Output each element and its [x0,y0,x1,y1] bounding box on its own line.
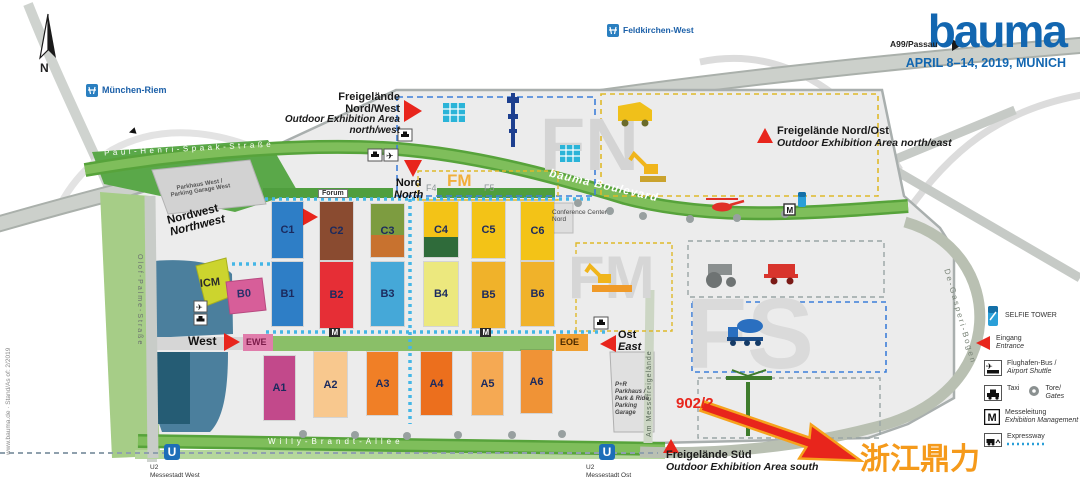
hall-a1-label: A1 [272,382,286,394]
legend-airport-en: Airport Shuttle [1007,368,1056,376]
legend-messeleitung-label: Messeleitung Exhibition Management [1005,409,1078,425]
ubahn-west-line: U2 [150,464,200,472]
ubahn-ost-line: U2 [586,464,631,472]
a94-label: A94 [439,60,465,77]
svg-text:M: M [332,328,339,337]
legend-taxi-label: Taxi [1007,385,1019,393]
legend-taxi-gates: Taxi Tore/ Gates [984,385,1064,401]
willy-brandt-label: Willy-Brandt-Allee [268,438,404,446]
pr-line1: P+R [615,382,649,389]
expressway-dashed-line [1007,441,1047,447]
ost-de: Ost [618,330,641,342]
scaffold-icon [443,103,465,122]
nord-en: North [394,190,423,202]
icm-label: ICM [199,277,220,291]
gates-icon [1028,385,1040,397]
freigelaende-nw-line1: Freigelände [266,92,400,104]
legend-eingang-de: Eingang [996,335,1024,343]
freigelaende-no-line1: Freigelände Nord/Ost [777,126,952,138]
slip-road-e [905,95,1080,215]
hall-c4-label: C4 [434,224,448,236]
selfie-tower-marker [798,192,806,207]
pr-garage-label: P+R Parkhaus / Park & Ride Parking Garag… [615,382,649,416]
ubahn-ost-name: Messestadt Ost [586,472,631,480]
freigelaende-no-line2: Outdoor Exhibition Area north/east [777,138,952,149]
svg-text:M: M [483,328,490,337]
hall-a1: A1 [264,356,295,420]
scaffold-icon-2 [560,145,580,162]
green-strip-mid [272,336,554,351]
hall-a6-label: A6 [529,376,543,388]
pr-line3: Park & Ride [615,396,649,403]
hall-b1: B1 [272,262,303,326]
hall-c1: C1 [272,202,303,258]
hall-b3: B3 [371,262,404,326]
hall-c6-label: C6 [530,225,544,237]
svg-text:M: M [988,412,997,424]
legend-messeleitung-en: Exhibition Management [1005,417,1078,425]
pr-line4: Parking [615,403,649,410]
nord-de: Nord [394,178,423,190]
freigelaende-nw-block: Freigelände Nord/West Outdoor Exhibition… [266,92,400,136]
svg-text:✈: ✈ [986,362,993,371]
selfie-tower-icon [986,304,1000,328]
hall-c3-lower [371,235,404,257]
hall-c6: C6 [521,202,554,260]
legend-selfie-tower: SELFIE TOWER [986,304,1057,328]
hall-a3: A3 [367,352,398,415]
freigelaende-no-block: Freigelände Nord/Ost Outdoor Exhibition … [777,126,952,149]
ost-entrance-label: Ost East [618,330,641,353]
management-marker-ne: M [784,204,795,215]
svg-text:✈: ✈ [196,303,203,312]
autobahn-icon-feldkirchen [607,24,619,37]
hall-c1-label: C1 [280,224,294,236]
hall-c2-label: C2 [329,225,343,237]
legend-messeleitung-de: Messeleitung [1005,409,1078,417]
eoe-label: EOE [560,338,579,347]
conference-line2: Nord [552,217,607,224]
ubahn-ost-label: U2 Messestadt Ost [586,464,631,480]
legend-airport-shuttle: ✈ Flughafen-Bus / Airport Shuttle [984,360,1056,376]
hall-a3-label: A3 [375,378,389,390]
legend-airport-label: Flughafen-Bus / Airport Shuttle [1007,360,1056,376]
ubahn-west-name: Messestadt West [150,472,200,480]
legend-messeleitung: M Messeleitung Exhibition Management [984,409,1078,425]
freigelaende-sued-line1: Freigelände Süd [666,450,818,462]
booth-number-label: 902/2 [676,396,714,412]
ost-en: East [618,342,641,354]
hall-a4: A4 [421,352,452,415]
hall-c2: C2 [320,202,353,260]
fs-letters: FS [686,278,814,390]
event-dates: APRIL 8–14, 2019, MUNICH [906,56,1066,70]
svg-text:M: M [787,206,794,215]
hall-b2: B2 [320,262,353,328]
freigelaende-nw-line4: north/west [266,126,400,137]
hall-b1-label: B1 [280,288,294,300]
legend-expressway: Expressway [984,433,1047,451]
pr-line2: Parkhaus / [615,389,649,396]
map-footer-credit: www.bauma.de · Stand/As of: 2/2019 [6,348,13,455]
ubahn-west-icon: U [164,444,180,460]
conference-center-label: Conference Center Nord [552,210,607,224]
olof-palme-road [150,196,153,458]
freigelaende-sued-line2: Outdoor Exhibition Area south [666,462,818,473]
pr-line5: Garage [615,410,649,417]
hall-b5-label: B5 [481,289,495,301]
bauma-site-map: FN FM FS [0,0,1080,489]
nord-entrance-label: Nord North [394,178,423,201]
legend-eingang-en: Entrance [996,343,1024,351]
autobahn-icon-muenchen-riem [86,84,98,97]
hall-b2-label: B2 [329,289,343,301]
hall-a2: A2 [314,352,347,417]
legend-tore-de: Tore/ [1045,385,1064,393]
olof-palme-label: Olof-Palme-Straße [136,254,143,346]
freigelaende-sued-block: Freigelände Süd Outdoor Exhibition Area … [666,450,818,473]
hall-c4-lower [424,237,458,257]
hall-a4-label: A4 [429,378,443,390]
ewe-label: EWE [246,338,267,347]
taxi-icon-nord [398,129,412,141]
hall-c3-label: C3 [380,225,394,237]
legend-eingang-label: Eingang Entrance [996,335,1024,351]
taxi-icon [984,385,1002,401]
legend-expressway-label: Expressway [1007,433,1047,450]
b0-label: B0 [237,289,252,301]
legend-airport-de: Flughafen-Bus / [1007,360,1056,368]
f4-label: F4 [426,184,437,193]
exhibitor-name-label: 浙江鼎力 [860,444,980,476]
legend-tore-en: Gates [1045,393,1064,401]
hall-b4: B4 [424,262,458,326]
hall-a2-label: A2 [323,379,337,391]
hall-c5: C5 [472,202,505,258]
forum-label: Forum [318,189,348,198]
muenchen-riem-label: München-Riem [102,86,167,95]
hall-b5: B5 [472,262,505,328]
fm-letters: FM [568,244,655,311]
entrance-arrow-icon [974,335,991,351]
hall-c3: C3 [371,204,404,257]
fm-small-label: FM [447,172,472,190]
legend-tore-label: Tore/ Gates [1045,385,1064,401]
expressway-icon [984,433,1002,451]
ubahn-ost-icon: U [599,444,615,460]
a99-passau-label: A99/Passau [890,40,938,49]
f5-label: F5 [484,184,495,193]
west-entrance-label: West [188,335,216,348]
exhibition-management-icon: M [984,409,1000,425]
taxi-icon-ost [594,317,608,329]
airport-shuttle-icon: ✈ [984,360,1002,376]
hall-c5-label: C5 [481,224,495,236]
ubahn-west-label: U2 Messestadt West [150,464,200,480]
compass-n-label: N [40,62,49,75]
svg-text:✈: ✈ [386,151,394,161]
feldkirchen-west-label: Feldkirchen-West [623,26,694,35]
hall-b4-label: B4 [434,288,448,300]
hall-b6: B6 [521,262,554,326]
legend-expressway-text: Expressway [1007,433,1047,441]
hall-c4: C4 [424,202,458,257]
hall-a5-label: A5 [480,378,494,390]
legend-eingang: Eingang Entrance [974,335,1024,351]
legend-selfie-tower-label: SELFIE TOWER [1005,312,1057,320]
hall-a5: A5 [472,352,503,415]
hall-a6: A6 [521,350,552,413]
hall-b3-label: B3 [380,288,394,300]
hall-b6-label: B6 [530,288,544,300]
